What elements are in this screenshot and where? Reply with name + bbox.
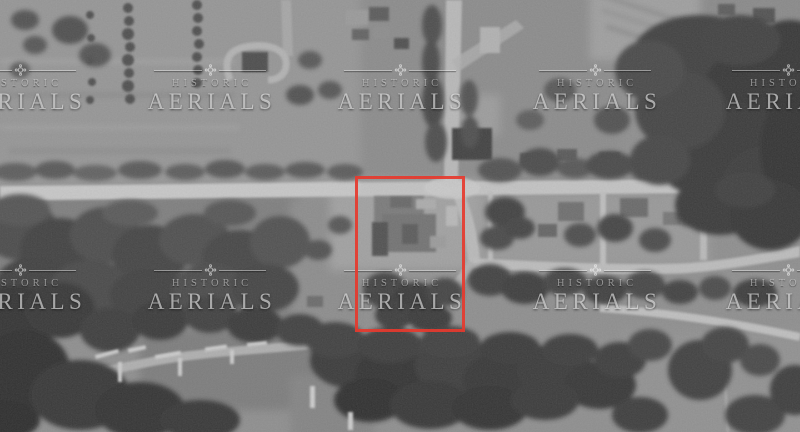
highlight-rectangle-annotation (355, 176, 465, 332)
aerial-imagery-viewport[interactable]: HISTORIC AERIALS HISTORIC AERIALS HISTOR… (0, 0, 800, 432)
